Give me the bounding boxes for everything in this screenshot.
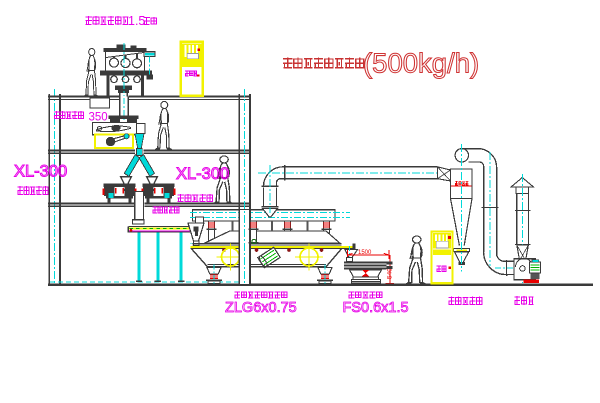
svg-text:XL-300: XL-300 [176,165,229,183]
svg-text:XL-300: XL-300 [14,163,67,181]
svg-text:ZLG6x0.75: ZLG6x0.75 [225,300,297,316]
svg-text:1.5: 1.5 [128,14,145,28]
svg-text:540: 540 [387,268,394,279]
svg-text:(500kg/h): (500kg/h) [363,48,479,79]
svg-text:350: 350 [89,112,108,124]
svg-text:FS0.6x1.5: FS0.6x1.5 [343,300,409,316]
svg-text:1500: 1500 [358,250,372,256]
